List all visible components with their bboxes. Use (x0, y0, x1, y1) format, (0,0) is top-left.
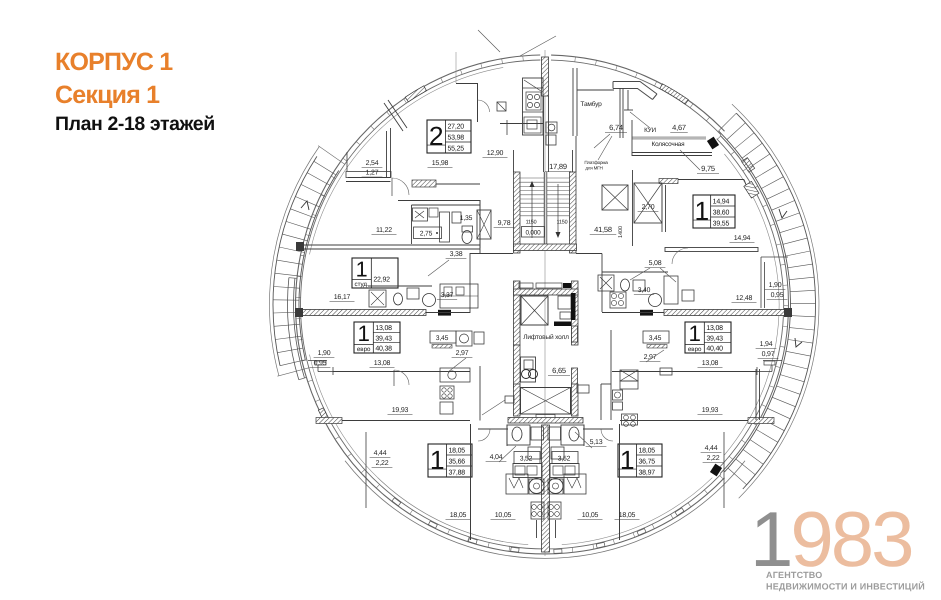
svg-text:17,89: 17,89 (549, 162, 567, 171)
svg-text:2,75: 2,75 (420, 231, 433, 238)
svg-text:4,67: 4,67 (672, 123, 686, 132)
svg-text:0,97: 0,97 (762, 351, 775, 358)
svg-text:1: 1 (356, 257, 368, 282)
svg-text:для МГН: для МГН (585, 166, 602, 171)
svg-text:55,25: 55,25 (447, 146, 464, 153)
svg-text:Лифтовый холл: Лифтовый холл (523, 334, 569, 341)
svg-text:3,45: 3,45 (649, 335, 662, 342)
svg-text:1: 1 (430, 445, 445, 475)
svg-text:1,35: 1,35 (460, 215, 473, 222)
svg-text:19,93: 19,93 (392, 407, 409, 414)
svg-text:2,22: 2,22 (707, 455, 720, 462)
svg-text:1: 1 (688, 321, 700, 346)
svg-text:1: 1 (694, 196, 709, 226)
svg-text:18,05: 18,05 (619, 512, 636, 519)
svg-text:18,05: 18,05 (638, 448, 655, 455)
svg-text:11,22: 11,22 (376, 227, 392, 234)
svg-text:2: 2 (429, 121, 444, 151)
svg-text:2,97: 2,97 (456, 350, 469, 357)
svg-text:2,70: 2,70 (642, 204, 655, 211)
svg-text:22,92: 22,92 (373, 276, 390, 283)
svg-text:1,90: 1,90 (769, 282, 782, 289)
svg-text:2,54: 2,54 (366, 160, 379, 167)
svg-text:6,65: 6,65 (552, 366, 566, 375)
svg-text:35,66: 35,66 (448, 459, 465, 466)
svg-text:12,90: 12,90 (487, 150, 504, 157)
svg-text:6,74: 6,74 (609, 123, 623, 132)
svg-text:Колясочная: Колясочная (652, 141, 686, 148)
svg-text:0,95: 0,95 (771, 292, 784, 299)
svg-text:3,40: 3,40 (638, 287, 651, 294)
svg-text:2,22: 2,22 (376, 460, 389, 467)
svg-text:2,97: 2,97 (644, 354, 657, 361)
svg-text:1,94: 1,94 (760, 341, 773, 348)
svg-text:40,40: 40,40 (706, 346, 723, 353)
svg-text:16,17: 16,17 (334, 294, 351, 301)
svg-text:13,08: 13,08 (702, 360, 719, 367)
svg-text:евро: евро (688, 346, 702, 353)
svg-text:5,08: 5,08 (649, 260, 662, 267)
svg-text:14,94: 14,94 (734, 235, 751, 242)
svg-text:39,55: 39,55 (713, 221, 730, 228)
svg-text:3,52: 3,52 (558, 456, 571, 463)
svg-text:13,08: 13,08 (375, 325, 392, 332)
svg-text:39,43: 39,43 (375, 335, 392, 342)
svg-text:АГЕНТСТВО: АГЕНТСТВО (766, 570, 822, 580)
svg-text:10,05: 10,05 (495, 512, 512, 519)
svg-text:3,37: 3,37 (441, 292, 454, 299)
svg-text:27,20: 27,20 (447, 124, 464, 131)
svg-text:39,43: 39,43 (706, 335, 723, 342)
svg-text:1150: 1150 (557, 220, 568, 226)
svg-text:4,44: 4,44 (705, 445, 718, 452)
svg-text:18,05: 18,05 (450, 512, 467, 519)
svg-text:37,88: 37,88 (448, 470, 465, 477)
svg-text:КОРПУС 1: КОРПУС 1 (55, 48, 173, 76)
svg-text:9,78: 9,78 (498, 220, 511, 227)
svg-text:Секция 1: Секция 1 (55, 81, 160, 109)
svg-text:3,52: 3,52 (520, 456, 533, 463)
svg-text:НЕДВИЖИМОСТИ И ИНВЕСТИЦИЙ: НЕДВИЖИМОСТИ И ИНВЕСТИЦИЙ (766, 581, 925, 592)
svg-text:38,60: 38,60 (713, 210, 730, 217)
svg-text:9,75: 9,75 (701, 164, 715, 173)
svg-text:10,05: 10,05 (582, 512, 599, 519)
svg-text:14,94: 14,94 (713, 199, 730, 206)
svg-text:4,44: 4,44 (374, 450, 387, 457)
svg-text:Платформа: Платформа (584, 160, 608, 165)
svg-text:15,98: 15,98 (432, 160, 449, 167)
svg-text:19,93: 19,93 (702, 407, 719, 414)
svg-text:13,08: 13,08 (706, 325, 723, 332)
svg-text:1,27: 1,27 (366, 170, 379, 177)
svg-text:евро: евро (357, 346, 371, 353)
svg-text:1: 1 (620, 445, 635, 475)
svg-text:План 2-18 этажей: План 2-18 этажей (55, 113, 215, 135)
svg-text:53,98: 53,98 (447, 135, 464, 142)
svg-text:0,000: 0,000 (526, 230, 542, 237)
svg-text:38,97: 38,97 (638, 470, 655, 477)
svg-text:студ.: студ. (355, 281, 369, 288)
svg-text:КУИ: КУИ (644, 127, 656, 134)
svg-text:1: 1 (357, 321, 369, 346)
svg-text:3,38: 3,38 (450, 251, 463, 258)
svg-text:1,90: 1,90 (318, 350, 331, 357)
svg-text:Тамбур: Тамбур (580, 101, 602, 108)
svg-text:13,08: 13,08 (374, 360, 391, 367)
svg-text:36,75: 36,75 (638, 459, 655, 466)
svg-text:18,05: 18,05 (448, 448, 465, 455)
svg-text:5,13: 5,13 (590, 439, 603, 446)
svg-text:41,58: 41,58 (594, 225, 612, 234)
svg-text:1150: 1150 (526, 220, 537, 226)
svg-text:12,48: 12,48 (736, 295, 753, 302)
svg-text:3,45: 3,45 (436, 335, 449, 342)
svg-text:40,38: 40,38 (375, 346, 392, 353)
svg-text:1400: 1400 (618, 226, 624, 238)
